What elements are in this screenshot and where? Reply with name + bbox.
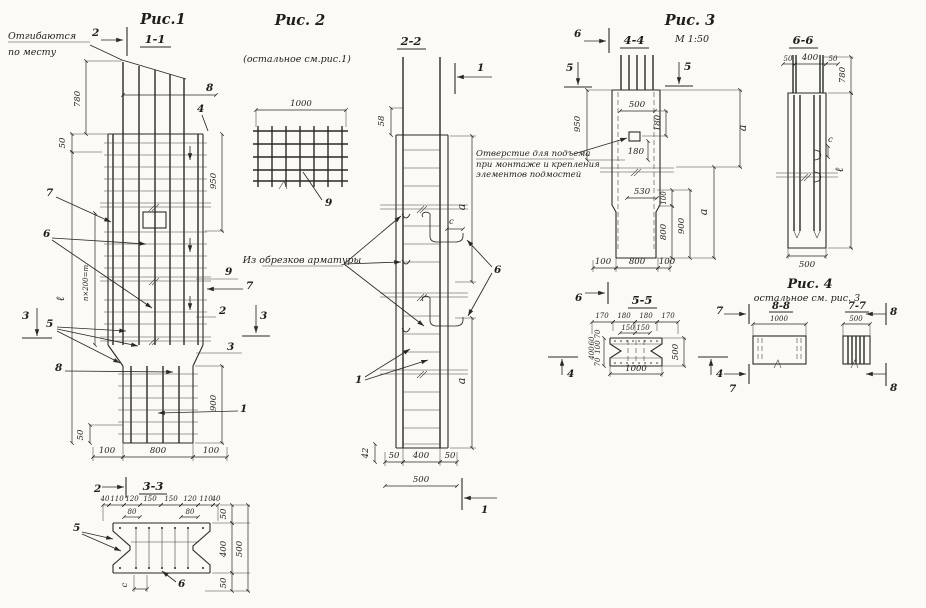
fig4-dim-1000: 1000 (770, 315, 788, 323)
dim-50-bot: 50 (76, 429, 86, 440)
fig3-dim-a-bot: a (697, 209, 710, 216)
sec66-title: 6-6 (793, 33, 814, 47)
fig4-sec77-label: 7-7 (848, 301, 866, 312)
fig3-dim-530: 530 (634, 187, 651, 197)
fig4-title: Рис. 4 (786, 277, 832, 292)
s33-callout-6: 6 (178, 578, 186, 590)
fig4-cut8-bot: 8 (890, 382, 898, 394)
fig3-cut5-left: 5 (566, 62, 573, 74)
callout-4: 4 (197, 103, 204, 115)
fig1-section-label: 1-1 (145, 32, 166, 46)
sec22-title: 2-2 (400, 34, 422, 48)
s66-dim-l: ℓ (833, 167, 846, 172)
s33-dim: 150 (143, 495, 157, 503)
s55-dim-1000: 1000 (625, 364, 647, 374)
sec33-cut2-label: 2 (93, 483, 101, 495)
sec22-note: Из обрезков арматуры (242, 255, 362, 266)
sec33-title: 3-3 (143, 479, 164, 493)
sec22-dim-58: 58 (377, 115, 387, 126)
s33-dim: 110 (110, 495, 124, 503)
s66-dim-780: 780 (838, 66, 848, 83)
fig3-dim-b100l: 100 (595, 257, 612, 267)
fig1-title: Рис.1 (139, 11, 185, 28)
section-5-5: 5-5 170 180 180 170 150 150 70 60 100 40… (548, 293, 728, 380)
dim-950: 950 (209, 172, 219, 189)
s33-callout-5: 5 (73, 522, 80, 534)
fig3-title: Рис. 3 (664, 12, 715, 29)
callout-7-right: 7 (246, 280, 254, 292)
s55-dim: 150 (636, 324, 650, 332)
fig3-dim-900: 900 (677, 217, 687, 234)
dim-length-l: ℓ (54, 296, 67, 301)
dim-100-left: 100 (99, 446, 116, 456)
fig3-dim-100: 100 (660, 191, 668, 205)
fig1-note-line1: Отгибаются (8, 31, 76, 42)
s33-dim: 120 (125, 495, 139, 503)
fig2-mesh: Рис. 2 (остальное см.рис.1) 1000 9 (243, 12, 351, 209)
fig3-dim-950: 950 (573, 115, 583, 132)
sec22-dim-a-top: a (455, 204, 468, 211)
fig4: Рис. 4 остальное см. рис. 3 8-8 1000 7 7… (716, 277, 898, 395)
fig3-dim-180a: 180 (653, 114, 663, 131)
sec55-title: 5-5 (632, 293, 653, 307)
callout-2: 2 (218, 305, 226, 317)
s55-cut4-right: 4 (716, 368, 723, 380)
fig1-cut2-label: 2 (91, 27, 99, 39)
s55-dim: 170 (661, 312, 675, 320)
fig4-cut8-top: 8 (890, 306, 898, 318)
sec22-cut1-bot: 1 (481, 504, 488, 516)
sec22-dim-c: c (449, 217, 454, 227)
fig3-dim-180b: 180 (628, 147, 645, 157)
callout-9: 9 (225, 266, 233, 278)
fig3-cut5-right: 5 (684, 61, 691, 73)
sec22-dim-50l: 50 (389, 451, 400, 461)
sec22-dim-500: 500 (413, 475, 430, 485)
fig3-dim-800: 800 (659, 223, 669, 240)
s55-dim-500: 500 (671, 343, 681, 360)
s33-dim: 150 (164, 495, 178, 503)
s66-dim-400: 400 (801, 53, 819, 63)
s55-left-dim: 70 (594, 357, 602, 366)
s66-dim-50l: 50 (784, 55, 793, 63)
s66-dim-500: 500 (799, 260, 816, 270)
callout-8-top: 8 (206, 82, 214, 94)
s55-cut4-left: 4 (567, 368, 574, 380)
s66-dim-50r: 50 (829, 55, 838, 63)
fig3-hole-note-1: Отверстие для подъема (476, 149, 590, 159)
sec22-dim-400: 400 (412, 451, 430, 461)
fig3-dim-500: 500 (629, 100, 646, 110)
s55-dim: 170 (595, 312, 609, 320)
dim-900: 900 (209, 394, 219, 411)
fig3-cut6-top: 6 (574, 28, 582, 40)
s33-dim-50b: 50 (219, 577, 229, 588)
sec22-dim-50r: 50 (445, 451, 456, 461)
fig3-cut6-bot: 6 (575, 292, 583, 304)
s55-dim: 180 (617, 312, 631, 320)
sec22-dim-42: 42 (361, 448, 371, 460)
fig3-hole-note-3: элементов подмостей (476, 170, 581, 180)
cut-3-right-label: 3 (260, 310, 267, 322)
dim-780: 780 (73, 90, 83, 107)
fig3-lifting-hole (629, 132, 640, 141)
cut-3-left-label: 3 (22, 310, 29, 322)
fig2-title: Рис. 2 (274, 12, 325, 29)
fig2-callout-9: 9 (325, 197, 333, 209)
callout-6: 6 (43, 228, 51, 240)
callout-3: 3 (227, 341, 234, 353)
dim-50-top: 50 (58, 137, 68, 148)
fig2-note: (остальное см.рис.1) (243, 54, 351, 65)
section-3-3: 3-3 2 40 110 120 150 150 120 110 40 80 8… (73, 477, 250, 592)
s33-dim: 120 (183, 495, 197, 503)
s33-dim-50t: 50 (219, 508, 229, 519)
fig4-cut7-bot: 7 (729, 383, 737, 395)
dim-100-right: 100 (203, 446, 220, 456)
s66-dim-c: c (828, 135, 833, 145)
s33-dim-c: c (120, 582, 130, 587)
fig1-elevation: Рис.1 1-1 Отгибаются по месту 2 780 50 ℓ… (8, 11, 270, 461)
fig4-sec88-label: 8-8 (772, 301, 790, 312)
fig3-section-label: 4-4 (624, 33, 645, 47)
callout-8: 8 (55, 362, 63, 374)
technical-drawing: Рис.1 1-1 Отгибаются по месту 2 780 50 ℓ… (0, 0, 926, 608)
fig3-elevation: Рис. 3 М 1:50 4-4 6 5 5 Отверстие для по… (476, 12, 749, 304)
s33-dim-80r: 80 (186, 508, 195, 516)
drawing-sheet: Рис.1 1-1 Отгибаются по месту 2 780 50 ℓ… (0, 0, 926, 608)
section-2-2: 2-2 1 c 58 a a 6 Из обрезков арматуры 1 … (242, 34, 502, 516)
fig3-dim-a-top: a (736, 125, 749, 132)
s33-dim-400: 400 (219, 540, 229, 558)
fig3-scale: М 1:50 (674, 34, 709, 45)
fig3-dim-b100r: 100 (659, 257, 676, 267)
s55-dim: 180 (639, 312, 653, 320)
callout-7-left: 7 (46, 187, 54, 199)
sec22-cut1-top: 1 (477, 62, 484, 74)
callout-5: 5 (46, 318, 53, 330)
callout-1: 1 (240, 403, 247, 415)
sec22-callout-1: 1 (355, 374, 362, 386)
fig4-dim-500: 500 (849, 315, 863, 323)
s33-dim-80l: 80 (128, 508, 137, 516)
fig1-note-line2: по месту (8, 47, 57, 58)
fig3-dim-b800: 800 (629, 257, 646, 267)
s33-dim-500: 500 (235, 540, 245, 557)
dim-pitch: n×200=m (82, 265, 90, 302)
dim-800: 800 (150, 446, 167, 456)
fig4-cut7-top: 7 (716, 305, 724, 317)
s55-dim: 150 (621, 324, 635, 332)
s33-dim: 40 (211, 495, 221, 503)
s33-dim: 40 (100, 495, 110, 503)
fig4-note: остальное см. рис. 3 (754, 293, 860, 304)
fig4-piece-8-8 (753, 336, 806, 364)
sec22-callout-6: 6 (494, 264, 502, 276)
fig2-dim-1000: 1000 (290, 99, 312, 109)
fig3-hole-note-2: при монтаже и крепления (476, 160, 600, 170)
sec22-dim-a-bot: a (455, 378, 468, 385)
section-6-6: 6-6 50 400 50 c 780 ℓ 500 (776, 33, 853, 270)
